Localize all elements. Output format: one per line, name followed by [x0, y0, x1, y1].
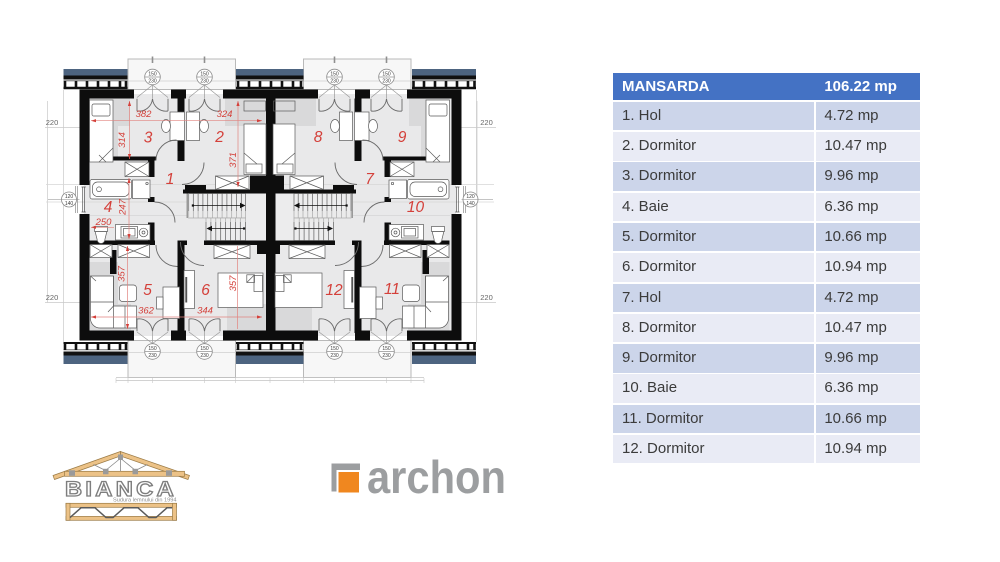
svg-text:324: 324 [217, 109, 233, 120]
svg-text:220: 220 [46, 118, 59, 127]
svg-text:150: 150 [330, 346, 339, 352]
svg-text:5: 5 [143, 282, 152, 299]
svg-text:150: 150 [148, 72, 157, 78]
svg-text:250: 250 [95, 217, 113, 228]
svg-text:230: 230 [382, 79, 391, 85]
svg-text:230: 230 [330, 79, 339, 85]
svg-text:12: 12 [325, 282, 343, 299]
svg-text:8: 8 [314, 129, 323, 146]
svg-text:230: 230 [148, 79, 157, 85]
svg-text:4: 4 [104, 199, 113, 216]
svg-text:230: 230 [148, 353, 157, 359]
svg-text:362: 362 [138, 306, 155, 317]
svg-text:140: 140 [466, 201, 475, 207]
svg-text:2: 2 [214, 129, 224, 146]
svg-text:247: 247 [118, 198, 129, 216]
svg-text:150: 150 [382, 72, 391, 78]
svg-text:371: 371 [228, 152, 239, 168]
svg-text:7: 7 [365, 171, 375, 188]
svg-text:9: 9 [398, 129, 407, 146]
svg-text:357: 357 [117, 265, 128, 282]
svg-text:357: 357 [228, 275, 239, 292]
svg-text:11: 11 [384, 281, 400, 298]
svg-text:344: 344 [197, 306, 213, 317]
svg-text:6: 6 [201, 282, 210, 299]
svg-text:230: 230 [330, 353, 339, 359]
svg-text:150: 150 [382, 346, 391, 352]
svg-text:150: 150 [330, 72, 339, 78]
svg-text:140: 140 [65, 201, 74, 207]
svg-text:230: 230 [200, 79, 209, 85]
svg-text:220: 220 [480, 118, 493, 127]
svg-text:120: 120 [65, 194, 74, 200]
svg-text:382: 382 [136, 109, 153, 120]
svg-text:220: 220 [46, 293, 59, 302]
svg-text:150: 150 [148, 346, 157, 352]
svg-text:150: 150 [200, 346, 209, 352]
svg-text:Sudura lemnului din 1994: Sudura lemnului din 1994 [113, 498, 176, 504]
svg-text:archon: archon [367, 451, 506, 503]
svg-text:314: 314 [117, 132, 128, 148]
svg-text:10: 10 [407, 199, 425, 216]
svg-text:230: 230 [382, 353, 391, 359]
svg-text:3: 3 [144, 130, 153, 147]
svg-text:150: 150 [200, 72, 209, 78]
svg-text:230: 230 [200, 353, 209, 359]
svg-text:220: 220 [480, 293, 493, 302]
svg-text:120: 120 [466, 194, 475, 200]
svg-text:1: 1 [166, 171, 175, 188]
